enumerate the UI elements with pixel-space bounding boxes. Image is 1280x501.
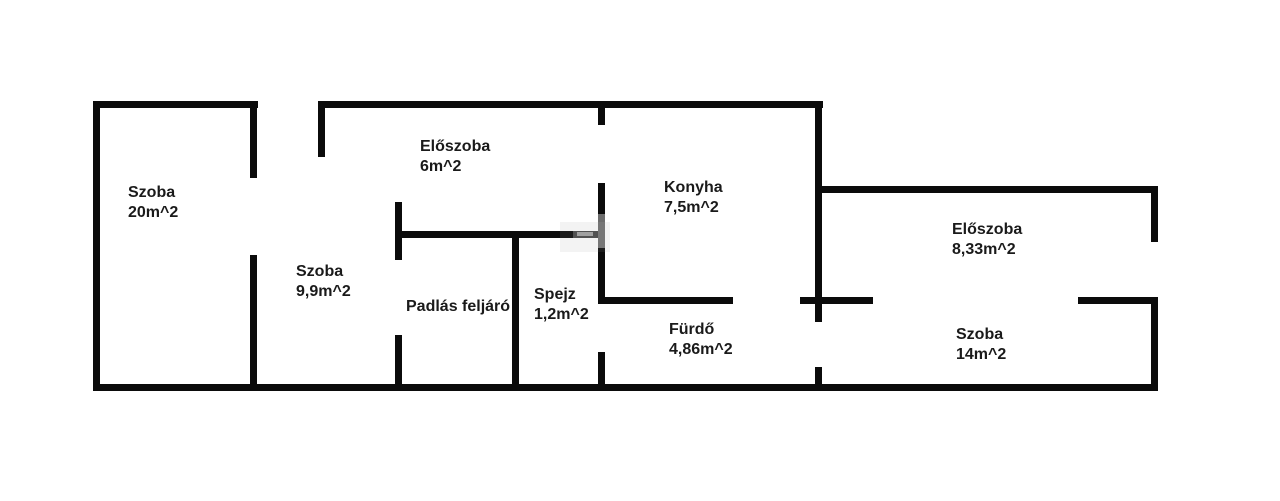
wall-right-outer-lower [1151, 298, 1158, 391]
room-area: 6m^2 [420, 157, 490, 177]
wall-eloszoba833-bottom [1078, 297, 1158, 304]
wall-padlas-left-upper [395, 202, 402, 260]
wall-top-szoba20 [93, 101, 258, 108]
room-name: Szoba [296, 262, 351, 282]
wall-padlas-spejz-top [395, 231, 573, 238]
room-name: Spejz [534, 285, 589, 305]
room-area: 1,2m^2 [534, 305, 589, 325]
room-label-furdo: Fürdő 4,86m^2 [669, 320, 733, 360]
room-name: Előszoba [952, 220, 1022, 240]
wall-konyha-bottom [598, 297, 733, 304]
wall-top-right-section [815, 186, 1158, 193]
room-label-padlas-feljaro: Padlás feljáró [406, 297, 510, 317]
room-label-eloszoba-6: Előszoba 6m^2 [420, 137, 490, 177]
wall-padlas-left-lower [395, 335, 402, 391]
room-area: 4,86m^2 [669, 340, 733, 360]
room-name: Padlás feljáró [406, 297, 510, 317]
watermark-lighten [598, 214, 605, 248]
wall-szoba20-right-lower [250, 255, 257, 391]
wall-top-main [318, 101, 823, 108]
room-name: Fürdő [669, 320, 733, 340]
room-name: Szoba [128, 183, 178, 203]
wall-szoba20-right-upper [250, 101, 257, 178]
wall-konyha-left-top-stub [598, 101, 605, 125]
wall-furdo-top-right-segment [800, 297, 873, 304]
floor-plan: Szoba 20m^2 Előszoba 6m^2 Szoba 9,9m^2 P… [0, 0, 1280, 501]
room-label-eloszoba-8-33: Előszoba 8,33m^2 [952, 220, 1022, 260]
wall-spejz-left [512, 231, 519, 391]
room-label-konyha: Konyha 7,5m^2 [664, 178, 723, 218]
wall-right-outer-upper [1151, 186, 1158, 242]
room-label-spejz: Spejz 1,2m^2 [534, 285, 589, 325]
room-area: 7,5m^2 [664, 198, 723, 218]
wall-konyha-right [815, 101, 822, 322]
wall-eloszoba6-left-stub [318, 101, 325, 157]
room-area: 8,33m^2 [952, 240, 1022, 260]
room-label-szoba-9-9: Szoba 9,9m^2 [296, 262, 351, 302]
room-name: Előszoba [420, 137, 490, 157]
room-area: 9,9m^2 [296, 282, 351, 302]
room-name: Szoba [956, 325, 1006, 345]
room-area: 20m^2 [128, 203, 178, 223]
wall-left-outer [93, 101, 100, 391]
watermark-notch [577, 232, 593, 236]
wall-szoba14-left-stub [815, 367, 822, 391]
room-name: Konyha [664, 178, 723, 198]
room-area: 14m^2 [956, 345, 1006, 365]
room-label-szoba-20: Szoba 20m^2 [128, 183, 178, 223]
room-label-szoba-14: Szoba 14m^2 [956, 325, 1006, 365]
wall-spejz-right-lower [598, 352, 605, 391]
